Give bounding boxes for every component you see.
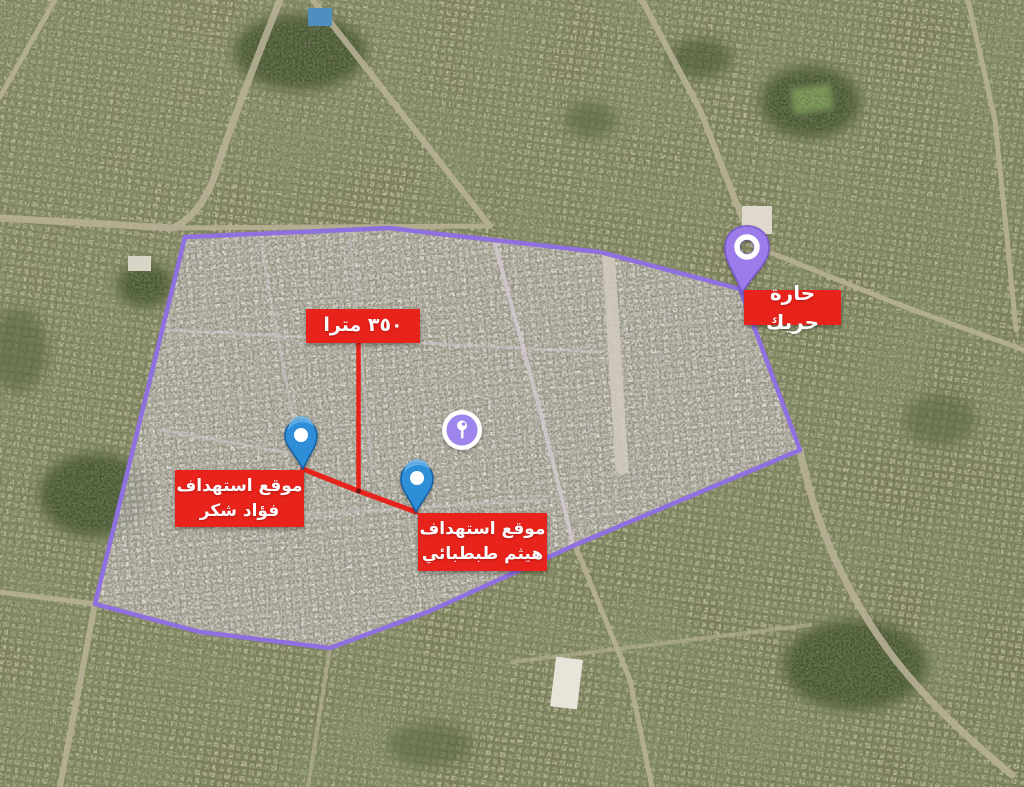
satellite-map xyxy=(0,0,1024,787)
map-canvas: حارة حريك ٣٥٠ مترا موقع استهداف فؤاد شكر… xyxy=(0,0,1024,787)
region-label-haret-hreik: حارة حريك xyxy=(744,290,841,325)
strike-label-line2: هيثم طبطبائي xyxy=(422,542,543,567)
region-label-text: حارة حريك xyxy=(744,279,841,337)
strike-label-fouad-shukr: موقع استهداف فؤاد شكر xyxy=(175,470,304,527)
strike-label-line2: فؤاد شكر xyxy=(200,499,279,524)
distance-label: ٣٥٠ مترا xyxy=(306,309,420,343)
line-junction-dot xyxy=(356,488,361,493)
location-dot-icon xyxy=(442,410,482,450)
strike-label-haytham-tabatabai: موقع استهداف هيثم طبطبائي xyxy=(418,513,547,571)
strike-label-line1: موقع استهداف xyxy=(420,517,546,542)
distance-label-text: ٣٥٠ مترا xyxy=(323,312,402,340)
strike-label-line1: موقع استهداف xyxy=(177,474,303,499)
